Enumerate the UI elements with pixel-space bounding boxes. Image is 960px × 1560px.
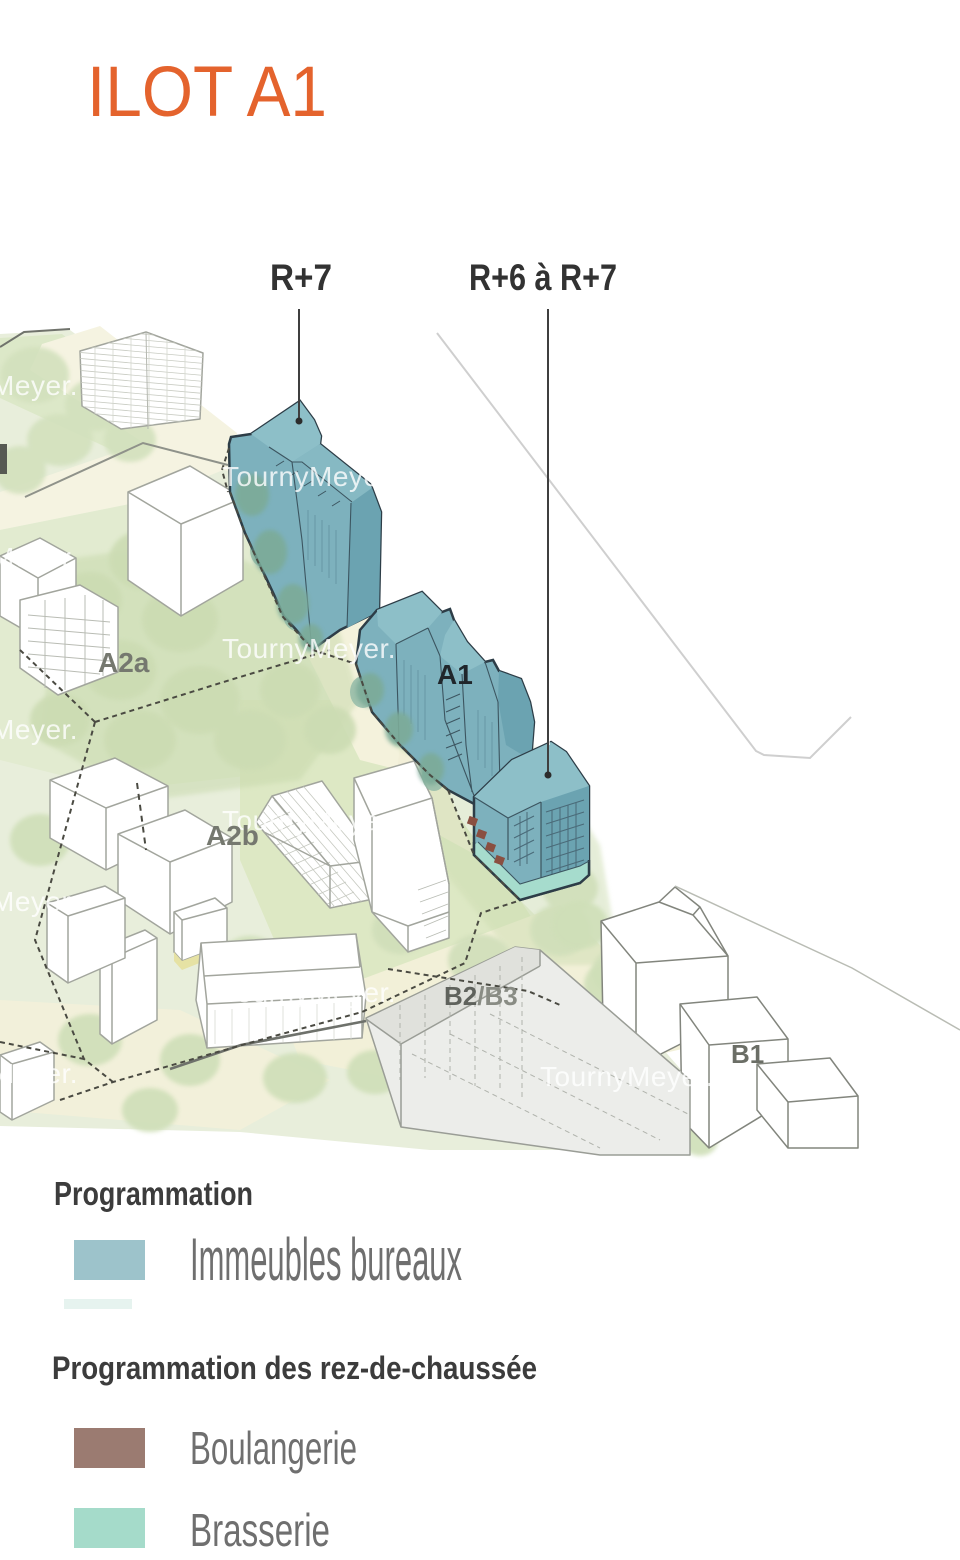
svg-text:B1: B1: [731, 1039, 764, 1069]
svg-text:Programmation des rez-de-chaus: Programmation des rez-de-chaussée: [52, 1350, 537, 1386]
svg-text:TournyMeyer.: TournyMeyer.: [0, 1058, 78, 1089]
svg-text:Boulangerie: Boulangerie: [190, 1422, 357, 1474]
svg-text:B2/B3: B2/B3: [444, 981, 518, 1011]
svg-text:TournyMeyer.: TournyMeyer.: [540, 1061, 714, 1092]
svg-text:Brasserie: Brasserie: [190, 1504, 330, 1556]
svg-text:TournyMeyer.: TournyMeyer.: [540, 720, 714, 751]
svg-text:TournyMeyer.: TournyMeyer.: [0, 714, 78, 745]
svg-text:R+6 à R+7: R+6 à R+7: [469, 257, 617, 298]
svg-text:TournyMeyer.: TournyMeyer.: [0, 886, 78, 917]
svg-text:TournyMeyer.: TournyMeyer.: [0, 370, 78, 401]
svg-text:Immeubles bureaux: Immeubles bureaux: [190, 1226, 462, 1293]
svg-text:TournyMeyer.: TournyMeyer.: [222, 633, 396, 664]
svg-text:R+7: R+7: [270, 257, 332, 298]
svg-text:A2b: A2b: [206, 820, 259, 851]
svg-text:TournyMeyer.: TournyMeyer.: [222, 461, 396, 492]
svg-text:TournyMeyer.: TournyMeyer.: [222, 977, 396, 1008]
svg-text:TournyMeyer.: TournyMeyer.: [0, 542, 78, 573]
svg-text:ILOT A1: ILOT A1: [87, 53, 327, 132]
svg-text:A2a: A2a: [98, 647, 150, 678]
svg-text:Programmation: Programmation: [54, 1175, 253, 1212]
svg-text:A1: A1: [437, 659, 473, 690]
